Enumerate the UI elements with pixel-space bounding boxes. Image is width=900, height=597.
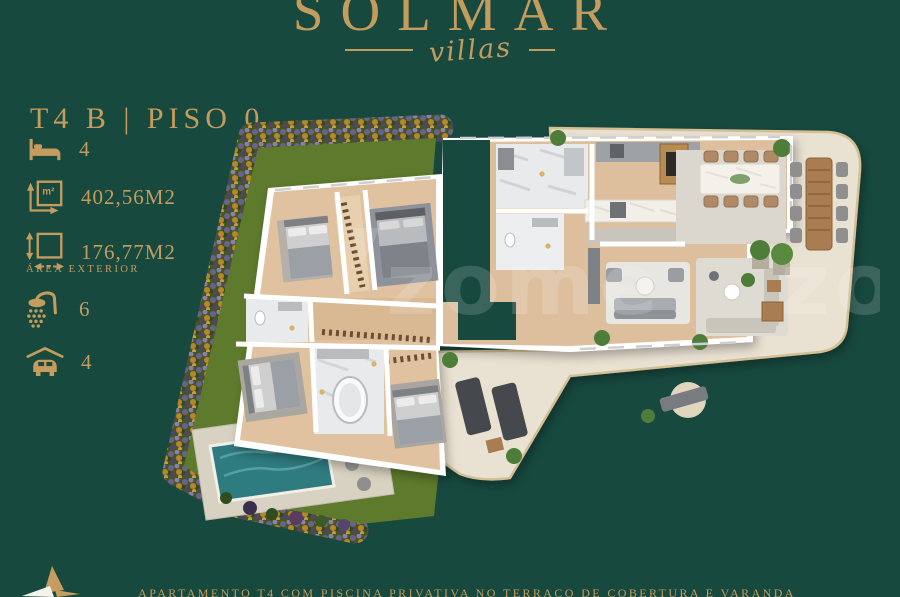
brand-tagline-row: villas: [0, 33, 900, 67]
watermark: zome zome: [350, 228, 880, 335]
bathroom-marble: [496, 144, 588, 208]
plant: [550, 130, 566, 146]
bathroom-1: [246, 298, 308, 342]
brand-header: SOLMAR villas: [0, 0, 900, 67]
tagline-rule-left: [345, 49, 413, 51]
bedroom-1: [277, 216, 334, 283]
floorplan-rendering: zome zome: [140, 100, 880, 580]
bedroom-3: [238, 352, 308, 422]
poster: SOLMAR villas T4 B | PISO 0 4 m²: [0, 0, 900, 597]
dining-room: [676, 139, 791, 244]
bed-icon: [26, 137, 62, 162]
ceiling-light: [539, 171, 544, 176]
plant: [773, 139, 791, 157]
stat-bathrooms-value: 6: [79, 297, 91, 322]
tagline-rule-right: [529, 49, 555, 51]
pool-chair: [357, 477, 371, 491]
four-point-star-icon: [16, 560, 100, 597]
ceiling-light: [289, 325, 294, 330]
brand-tagline: villas: [428, 32, 513, 69]
plant: [506, 448, 522, 464]
stat-bedrooms-value: 4: [79, 137, 91, 162]
area-m2-icon: m²: [26, 179, 64, 215]
car-garage-icon: [26, 346, 64, 378]
shower-icon: [26, 289, 62, 329]
plant: [741, 273, 755, 287]
plant: [442, 352, 458, 368]
ceiling-light: [371, 361, 376, 366]
caption: APARTAMENTO T4 COM PISCINA PRIVATIVA NO …: [0, 586, 900, 597]
svg-text:m²: m²: [42, 186, 55, 197]
svg-text:zome: zome: [780, 235, 880, 335]
plant: [641, 409, 655, 423]
bathroom-tub: [314, 346, 384, 434]
svg-text:zome: zome: [386, 235, 663, 335]
plant: [692, 334, 708, 350]
stat-parking-value: 4: [81, 350, 93, 375]
ceiling-light: [319, 389, 324, 394]
